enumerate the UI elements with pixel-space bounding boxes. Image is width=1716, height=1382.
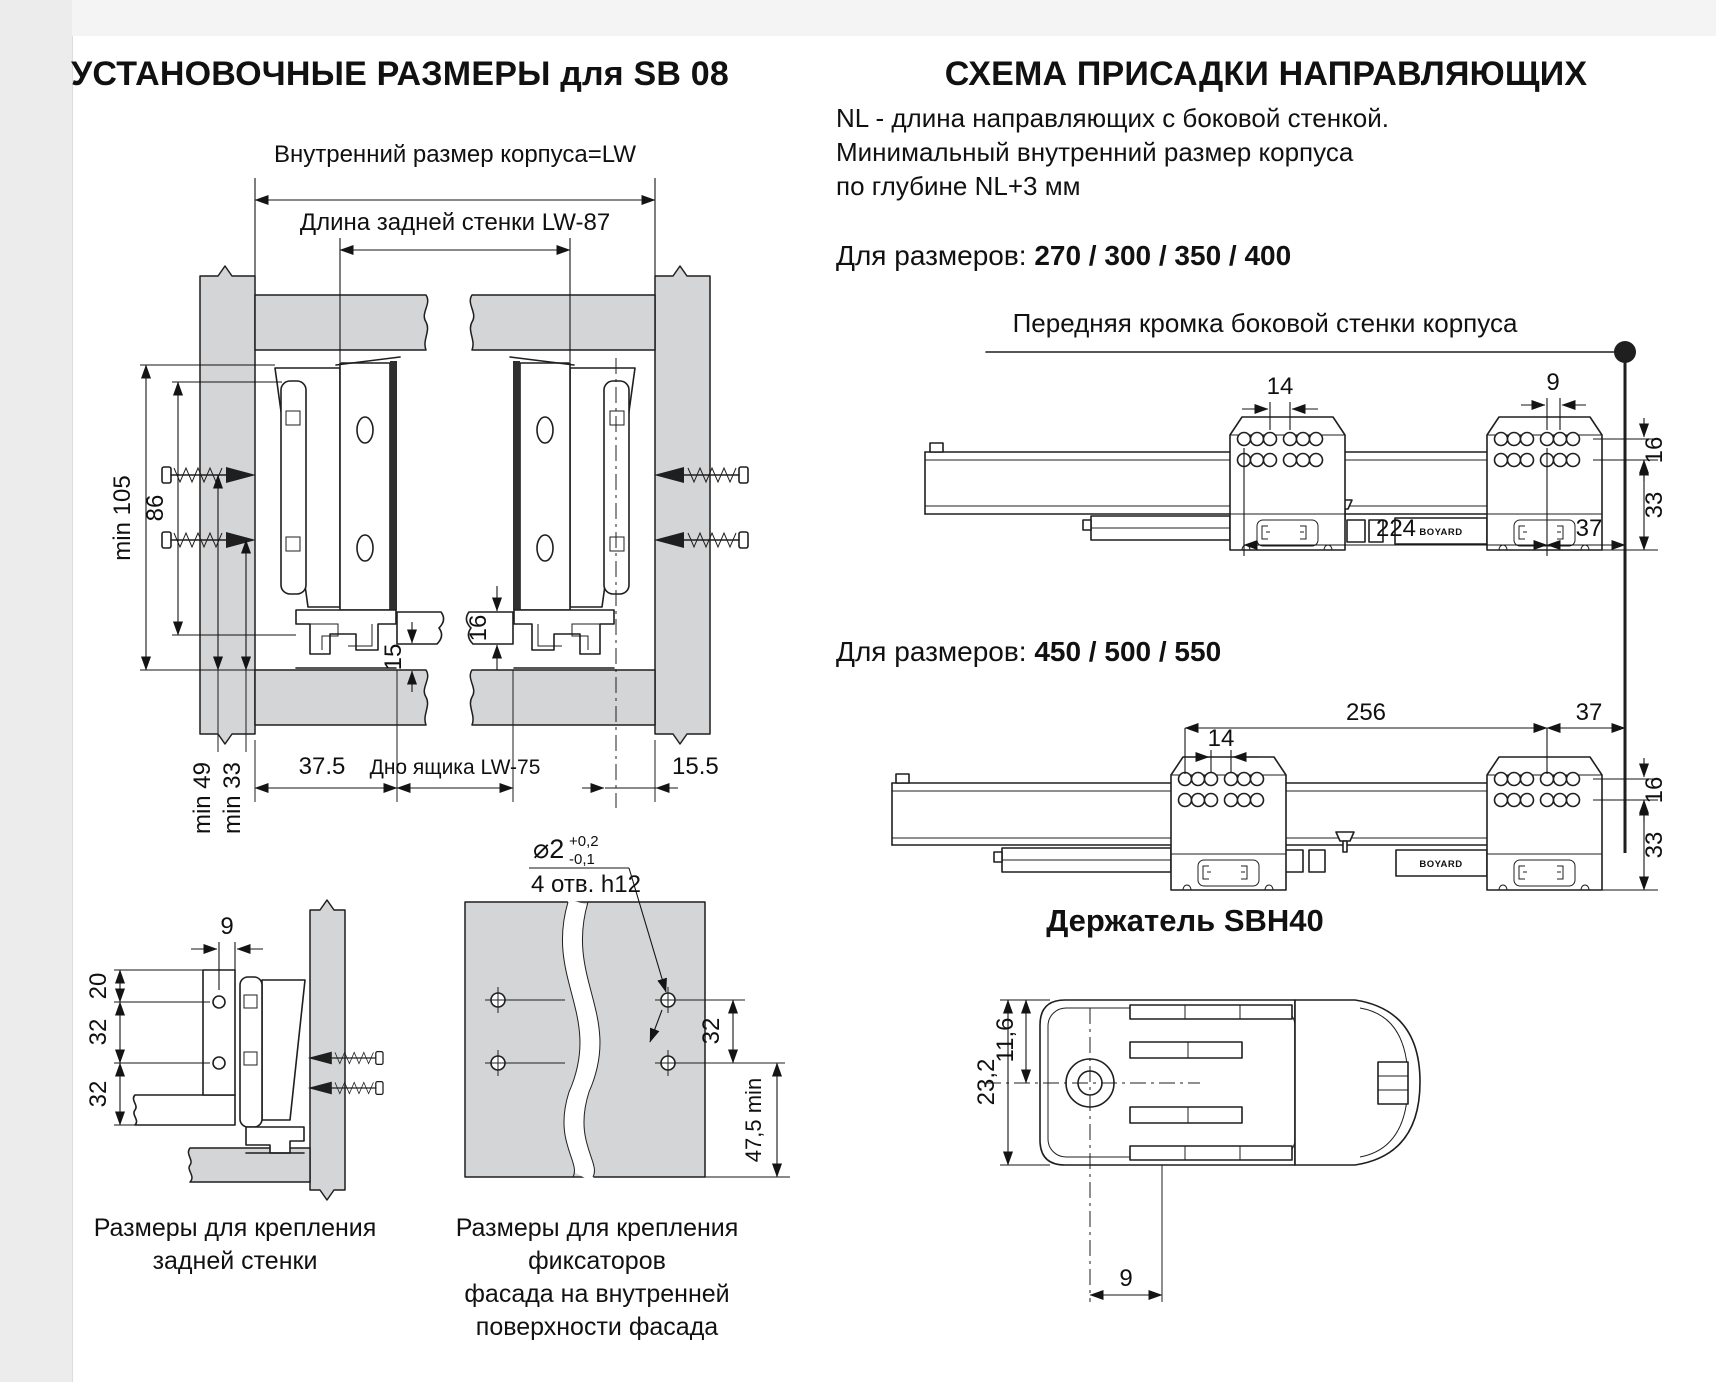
- boyard-logo: BOYARD: [1419, 859, 1462, 870]
- dim-min49-label: min 49: [189, 762, 216, 834]
- dim-37-5-label: 37.5: [299, 753, 346, 780]
- dim-inner-width-label: Внутренний размер корпуса=LW: [274, 141, 636, 168]
- dim-min33-label: min 33: [219, 762, 246, 834]
- dim-16-label: 16: [1641, 777, 1668, 804]
- cabinet-bottom-right-part: [470, 670, 655, 725]
- page-edge-top: [72, 0, 1716, 36]
- drawer-slide-right: [510, 357, 748, 668]
- drawer-slide-left: [162, 357, 400, 668]
- main-cross-section-diagram: Внутренний размер корпуса=LW Длина задне…: [60, 130, 760, 830]
- rail-diagram-270-400: BOYARD 14 9 224 37 16 33: [836, 332, 1716, 668]
- dim-20-label: 20: [85, 973, 112, 1000]
- dim-15-5-label: 15.5: [672, 753, 719, 780]
- left-title: УСТАНОВОЧНЫЕ РАЗМЕРЫ для SB 08: [70, 55, 730, 94]
- drawer-bottom-edge: [133, 1095, 235, 1125]
- backwall-detail-diagram: 9 20 32 32: [60, 830, 400, 1210]
- mounting-bracket-a: [1230, 417, 1345, 550]
- dim-224-label: 224: [1376, 515, 1416, 542]
- dim-16-label: 16: [465, 615, 492, 642]
- tolerance-lower: -0,1: [569, 851, 595, 868]
- dim-11-6-label: 11,6: [992, 1018, 1019, 1063]
- facade-caption: Размеры для крепления фиксаторов фасада …: [392, 1212, 802, 1344]
- dim-47-5-label: 47,5 min: [741, 1078, 766, 1162]
- dim-33-label: 33: [1641, 832, 1668, 859]
- dim-lw75-label: Дно ящика LW-75: [370, 756, 541, 779]
- holes-count-label: 4 отв. h12: [531, 871, 641, 898]
- mounting-bracket-a: [1171, 757, 1286, 890]
- drawer-back-wall-left-part: [255, 295, 428, 350]
- tolerance-upper: +0,2: [569, 833, 599, 850]
- dim-23-2-label: 23,2: [973, 1059, 1000, 1106]
- sizes-line-2: Для размеров: 450 / 500 / 550: [836, 636, 1221, 668]
- dim-33-label: 33: [1641, 492, 1668, 519]
- dim-37-label: 37: [1576, 515, 1603, 542]
- cabinet-side-left: [200, 266, 255, 744]
- dim-9-label: 9: [220, 913, 233, 940]
- dim-9-label: 9: [1119, 1265, 1132, 1292]
- hole-diameter-label: ⌀2: [533, 834, 564, 864]
- dim-256-label: 256: [1346, 699, 1386, 726]
- cabinet-side-right: [655, 266, 710, 744]
- slide-gusset: [262, 980, 305, 1120]
- dim-32-label: 32: [85, 1019, 112, 1046]
- page: УСТАНОВОЧНЫЕ РАЗМЕРЫ для SB 08 Внутренни…: [0, 0, 1716, 1382]
- drawer-back-wall-right-part: [470, 295, 655, 350]
- dim-32-label: 32: [85, 1081, 112, 1108]
- drawer-bottom-left-part: [397, 612, 444, 644]
- dim-15-label: 15: [380, 644, 407, 671]
- holder-title: Держатель SBH40: [950, 903, 1420, 939]
- dim-9-label: 9: [1546, 369, 1559, 396]
- dim-14-label: 14: [1267, 373, 1294, 400]
- backwall-caption: Размеры для крепления задней стенки: [70, 1212, 400, 1278]
- right-title: СХЕМА ПРИСАДКИ НАПРАВЛЯЮЩИХ: [836, 55, 1696, 94]
- facade-panel: [310, 900, 345, 1200]
- rail-underside-mechanism: BOYARD: [1281, 832, 1487, 876]
- dim-min105-label: min 105: [109, 475, 136, 560]
- dim-back-wall-label: Длина задней стенки LW-87: [300, 209, 610, 236]
- nl-note: NL - длина направляющих с боковой стенко…: [836, 102, 1536, 203]
- rail-diagram-450-550: BOYARD 256 37 14 16 33: [836, 668, 1716, 908]
- dim-86-label: 86: [142, 495, 169, 522]
- sizes-line-1: Для размеров: 270 / 300 / 350 / 400: [836, 240, 1291, 272]
- dim-37-label: 37: [1576, 699, 1603, 726]
- dim-32-label: 32: [698, 1018, 725, 1045]
- dim-14-label: 14: [1208, 725, 1235, 752]
- mounting-bracket-b: [1487, 757, 1602, 890]
- dim-16-label: 16: [1641, 437, 1668, 464]
- facade-detail-diagram: ⌀2 +0,2 -0,1 4 отв. h12 32 47,5 min: [455, 830, 795, 1190]
- cabinet-bottom-left-part: [255, 670, 428, 725]
- holder-sbh40-diagram: 23,2 11,6 9: [900, 950, 1460, 1350]
- boyard-logo: BOYARD: [1419, 527, 1462, 538]
